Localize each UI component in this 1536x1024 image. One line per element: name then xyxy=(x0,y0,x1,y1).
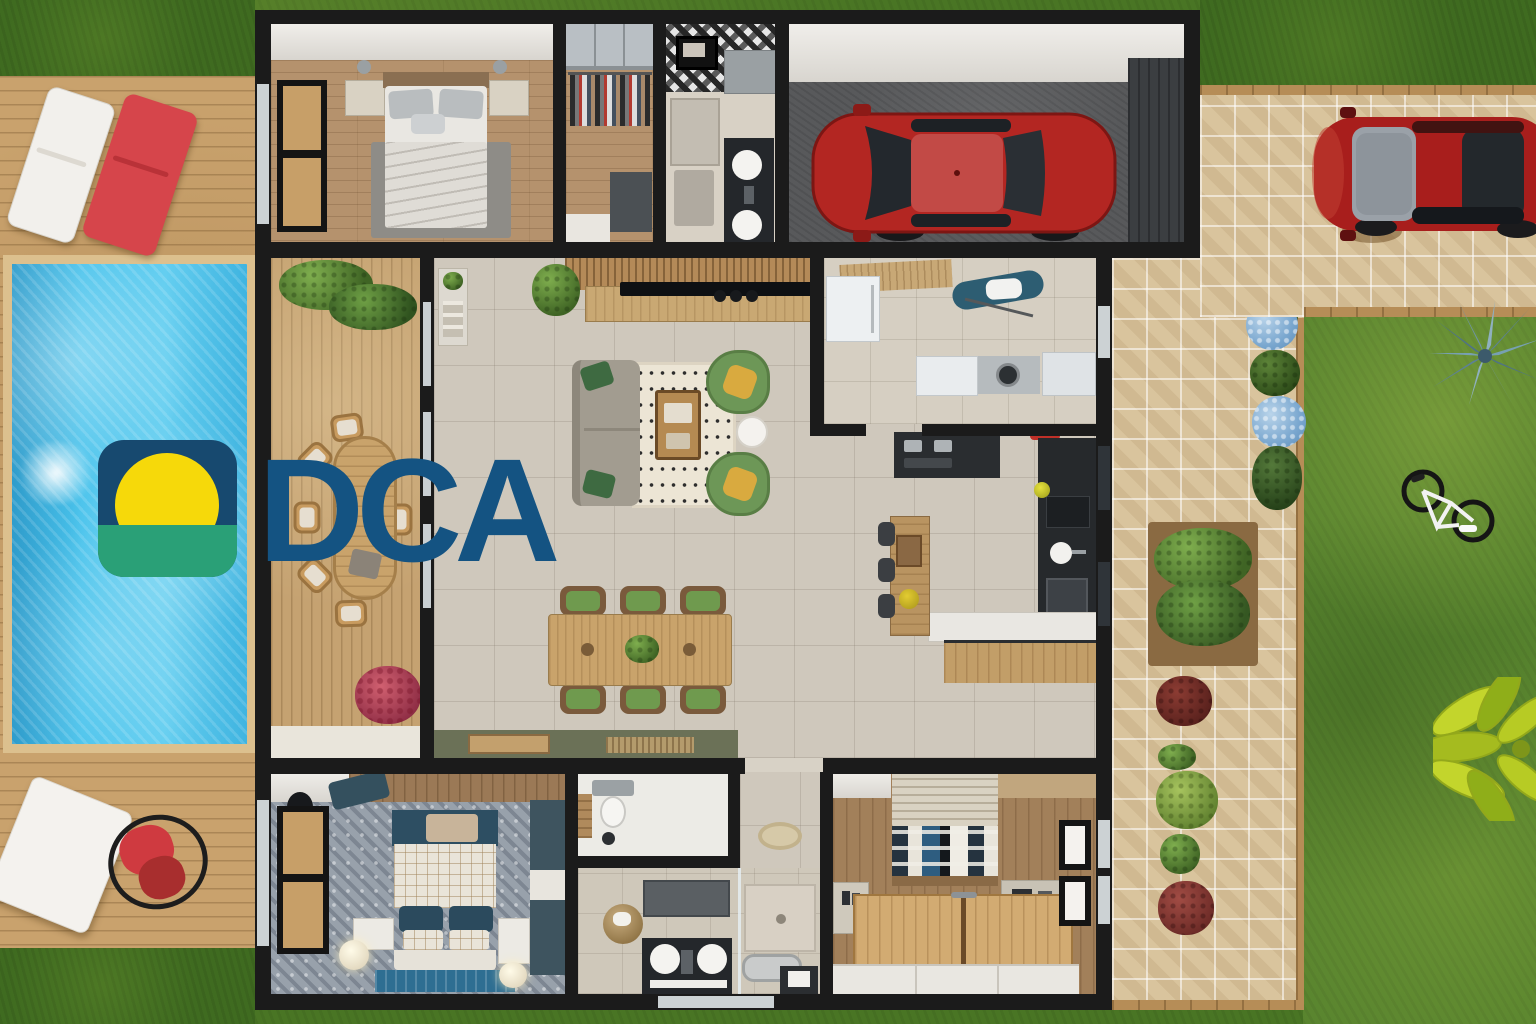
wardrobe-seam xyxy=(623,24,625,66)
plaid-duvet xyxy=(394,844,496,908)
bed-throw xyxy=(426,814,478,842)
window-inset xyxy=(257,84,269,224)
outdoor-chair xyxy=(335,599,368,627)
light-green-shrub xyxy=(1156,771,1218,829)
island-counter-front xyxy=(944,640,1096,683)
toilet xyxy=(600,796,626,828)
table-decor xyxy=(664,403,692,423)
burner xyxy=(934,440,952,452)
towels xyxy=(613,912,631,926)
wall xyxy=(255,10,1200,24)
bed-rug xyxy=(375,970,515,992)
laundry-counter xyxy=(916,356,978,396)
platform-handle xyxy=(951,892,977,898)
shelf xyxy=(578,794,592,838)
wall xyxy=(255,242,1200,258)
dining-chair xyxy=(680,586,726,616)
bench xyxy=(566,214,610,242)
armchair-pillow xyxy=(721,363,759,401)
shower-niche xyxy=(676,36,718,70)
nightstand xyxy=(489,80,529,116)
wall-face xyxy=(271,24,553,60)
red-shrub xyxy=(1156,676,1212,726)
lawn xyxy=(1303,315,1536,1024)
tropical-plant xyxy=(1433,677,1536,821)
garage-door xyxy=(1128,58,1184,242)
terrace-plants xyxy=(329,284,417,330)
table-knob xyxy=(581,643,594,656)
wall xyxy=(255,758,745,774)
shirt xyxy=(985,278,1022,300)
pillow xyxy=(438,88,484,119)
dining-chair xyxy=(560,586,606,616)
potted-plant xyxy=(532,264,580,316)
wall xyxy=(553,24,566,242)
sink-basin xyxy=(732,210,762,240)
drain xyxy=(776,914,786,924)
wardrobe-seam xyxy=(997,966,999,996)
window-bar xyxy=(283,874,323,882)
bar-tray xyxy=(896,535,922,567)
wall xyxy=(565,772,578,994)
shower-tray xyxy=(670,98,720,166)
window-inset xyxy=(1098,446,1110,510)
duvet xyxy=(385,142,487,228)
bedroom-window xyxy=(277,806,329,954)
wall xyxy=(1184,10,1200,256)
terrace-mat xyxy=(271,726,420,758)
ceiling-lamp xyxy=(493,60,507,74)
window-inset xyxy=(1098,820,1110,868)
master-bedroom xyxy=(271,24,553,242)
wardrobe xyxy=(566,24,653,70)
sink-basin xyxy=(697,944,727,974)
toilet-room xyxy=(578,772,728,856)
shower-glass xyxy=(738,868,741,994)
window-panel xyxy=(1059,820,1091,870)
dining-chair xyxy=(620,586,666,616)
hydrangea-flowers xyxy=(1252,396,1306,448)
wall xyxy=(578,856,740,868)
grass-top-left xyxy=(0,0,255,78)
planter-plants xyxy=(1156,580,1250,646)
vanity-unit xyxy=(780,966,818,994)
oven xyxy=(1046,578,1088,614)
wardrobe-seam xyxy=(594,24,596,66)
coffee-table xyxy=(655,390,701,460)
pillow-teal xyxy=(399,906,443,932)
herb-pot xyxy=(1034,482,1050,498)
double-sink-counter xyxy=(642,938,732,994)
armchair xyxy=(706,452,770,516)
sideboard xyxy=(434,730,738,758)
dca-watermark-text: DCA xyxy=(258,438,552,585)
bicycle xyxy=(1399,465,1499,551)
waste-bin xyxy=(602,832,615,845)
wall xyxy=(823,758,1112,774)
wall-shelf xyxy=(438,268,468,346)
burner xyxy=(904,440,922,452)
sink-basin xyxy=(788,971,810,987)
dining-chair xyxy=(620,684,666,714)
speaker xyxy=(730,290,742,302)
flower-vase xyxy=(899,589,919,609)
pillow xyxy=(411,114,445,134)
garage xyxy=(789,24,1184,242)
grass-top-right xyxy=(1200,0,1536,88)
wardrobe-white xyxy=(833,964,1079,996)
fridge xyxy=(826,276,880,342)
driveway-car xyxy=(1312,103,1536,245)
wall xyxy=(810,256,824,436)
floor-lamp xyxy=(339,940,369,970)
dining-chair xyxy=(560,684,606,714)
bedroom-wood xyxy=(833,772,1096,994)
wall-face xyxy=(833,772,891,798)
shrub xyxy=(1250,350,1300,396)
window-inset xyxy=(257,800,269,946)
shelf-plant xyxy=(443,272,463,290)
armchair xyxy=(706,350,770,414)
logo-ground xyxy=(98,525,237,577)
wall-face xyxy=(993,772,1096,798)
wardrobe-counter xyxy=(530,870,565,900)
sofa-seam xyxy=(584,428,640,431)
garage-back-wall xyxy=(789,24,1184,82)
cooktop-counter xyxy=(894,432,1000,478)
island-counter-top xyxy=(928,612,1098,642)
wall xyxy=(775,10,789,242)
laundry-cabinet xyxy=(1042,352,1096,396)
kitchen-wall-counter xyxy=(1038,438,1096,640)
bedroom-blue xyxy=(271,772,565,994)
speaker xyxy=(746,290,758,302)
toilet-tank xyxy=(592,780,634,796)
wall xyxy=(653,10,666,242)
pillow-plaid xyxy=(449,930,489,950)
bar-stool xyxy=(878,594,895,618)
dining-table xyxy=(548,614,732,686)
bed-headboard xyxy=(392,810,498,846)
vanity-mirror xyxy=(643,880,730,917)
dresser xyxy=(610,172,652,232)
sofa xyxy=(572,360,640,506)
wood-trim xyxy=(1200,85,1536,95)
glass-door-panel xyxy=(423,302,431,386)
window-inset xyxy=(1098,876,1110,924)
flower-bush xyxy=(355,666,421,724)
nightstand xyxy=(345,80,385,116)
faucet xyxy=(681,950,693,974)
shelf-boxes xyxy=(443,301,463,337)
counter-edge xyxy=(650,980,727,988)
dining-chair xyxy=(680,684,726,714)
fridge-handle xyxy=(871,285,874,333)
pool-jet-splash xyxy=(14,442,98,504)
planter-box xyxy=(1148,522,1258,666)
lounger-seam xyxy=(112,155,169,178)
bathroom-bottom xyxy=(578,868,820,994)
sink-basin xyxy=(732,150,762,180)
laundry-room xyxy=(824,256,1096,424)
serving-tray xyxy=(468,734,550,754)
floor-plan-render: DCA xyxy=(0,0,1536,1024)
checkered-blanket xyxy=(892,826,998,878)
window-bar xyxy=(283,150,321,158)
sofa-pillow xyxy=(579,360,615,392)
wardrobe-teal xyxy=(530,900,565,975)
wood-platform xyxy=(853,894,1073,968)
cooktop-grate xyxy=(904,458,952,468)
table-decor xyxy=(666,433,690,449)
shower-bench xyxy=(724,50,777,94)
shower-tray xyxy=(744,884,816,952)
round-rug xyxy=(758,822,802,850)
armchair-pillow xyxy=(721,465,759,503)
garage-car xyxy=(805,102,1123,244)
window-inset xyxy=(1098,306,1110,358)
shrub xyxy=(1158,744,1196,770)
bottle xyxy=(842,891,850,905)
kitchen-sink xyxy=(1050,542,1072,564)
bathroom-top xyxy=(666,10,775,242)
bed-foot xyxy=(394,950,496,970)
paver-driveway xyxy=(1200,85,1536,317)
clothes-rod xyxy=(568,72,652,75)
wardrobe-seam xyxy=(915,966,917,996)
ceiling-lamp xyxy=(357,60,371,74)
faucet xyxy=(744,186,754,204)
wall xyxy=(820,772,833,994)
wall xyxy=(922,424,1096,436)
red-shrub xyxy=(1158,881,1214,935)
window-panel xyxy=(1059,876,1091,926)
agave-plant xyxy=(1429,301,1536,407)
stone-path xyxy=(1112,256,1304,1010)
table-knob xyxy=(683,643,696,656)
bed-base xyxy=(892,876,998,886)
niche-shelf xyxy=(683,43,705,57)
vanity-counter xyxy=(724,138,774,252)
folded-duvet xyxy=(892,772,998,828)
wardrobe-teal xyxy=(530,800,565,870)
breakfast-bar xyxy=(890,516,930,636)
shrub xyxy=(1252,446,1302,510)
bedroom-window xyxy=(277,80,327,232)
wall xyxy=(810,424,866,436)
washing-machine xyxy=(978,356,1040,394)
wood-trim xyxy=(1112,1000,1304,1010)
dca-logo xyxy=(98,440,237,577)
bath-mat xyxy=(674,170,714,226)
sink-basin xyxy=(650,944,680,974)
bar-stool xyxy=(878,558,895,582)
faucet xyxy=(1072,550,1086,554)
shrub xyxy=(1160,834,1200,874)
clothes-rack xyxy=(570,74,650,126)
washer-door xyxy=(996,363,1020,387)
floor-lamp xyxy=(499,962,527,988)
counter-inset xyxy=(1046,496,1090,528)
window-inset xyxy=(658,996,774,1008)
pillow-teal xyxy=(449,906,493,932)
nightstand xyxy=(498,918,530,964)
place-mat xyxy=(606,737,694,753)
platform-seam xyxy=(961,896,966,966)
sofa-pillow xyxy=(582,469,617,500)
wall xyxy=(728,772,740,868)
walk-in-closet xyxy=(566,24,653,242)
lounger-seam xyxy=(36,147,87,168)
speaker xyxy=(714,290,726,302)
side-table xyxy=(736,416,768,448)
bar-stool xyxy=(878,522,895,546)
grass-bottom-left xyxy=(0,948,255,1024)
pillow-plaid xyxy=(403,930,443,950)
table-centerpiece xyxy=(625,635,659,663)
laundry-basket xyxy=(603,904,643,944)
window-inset xyxy=(1098,562,1110,626)
